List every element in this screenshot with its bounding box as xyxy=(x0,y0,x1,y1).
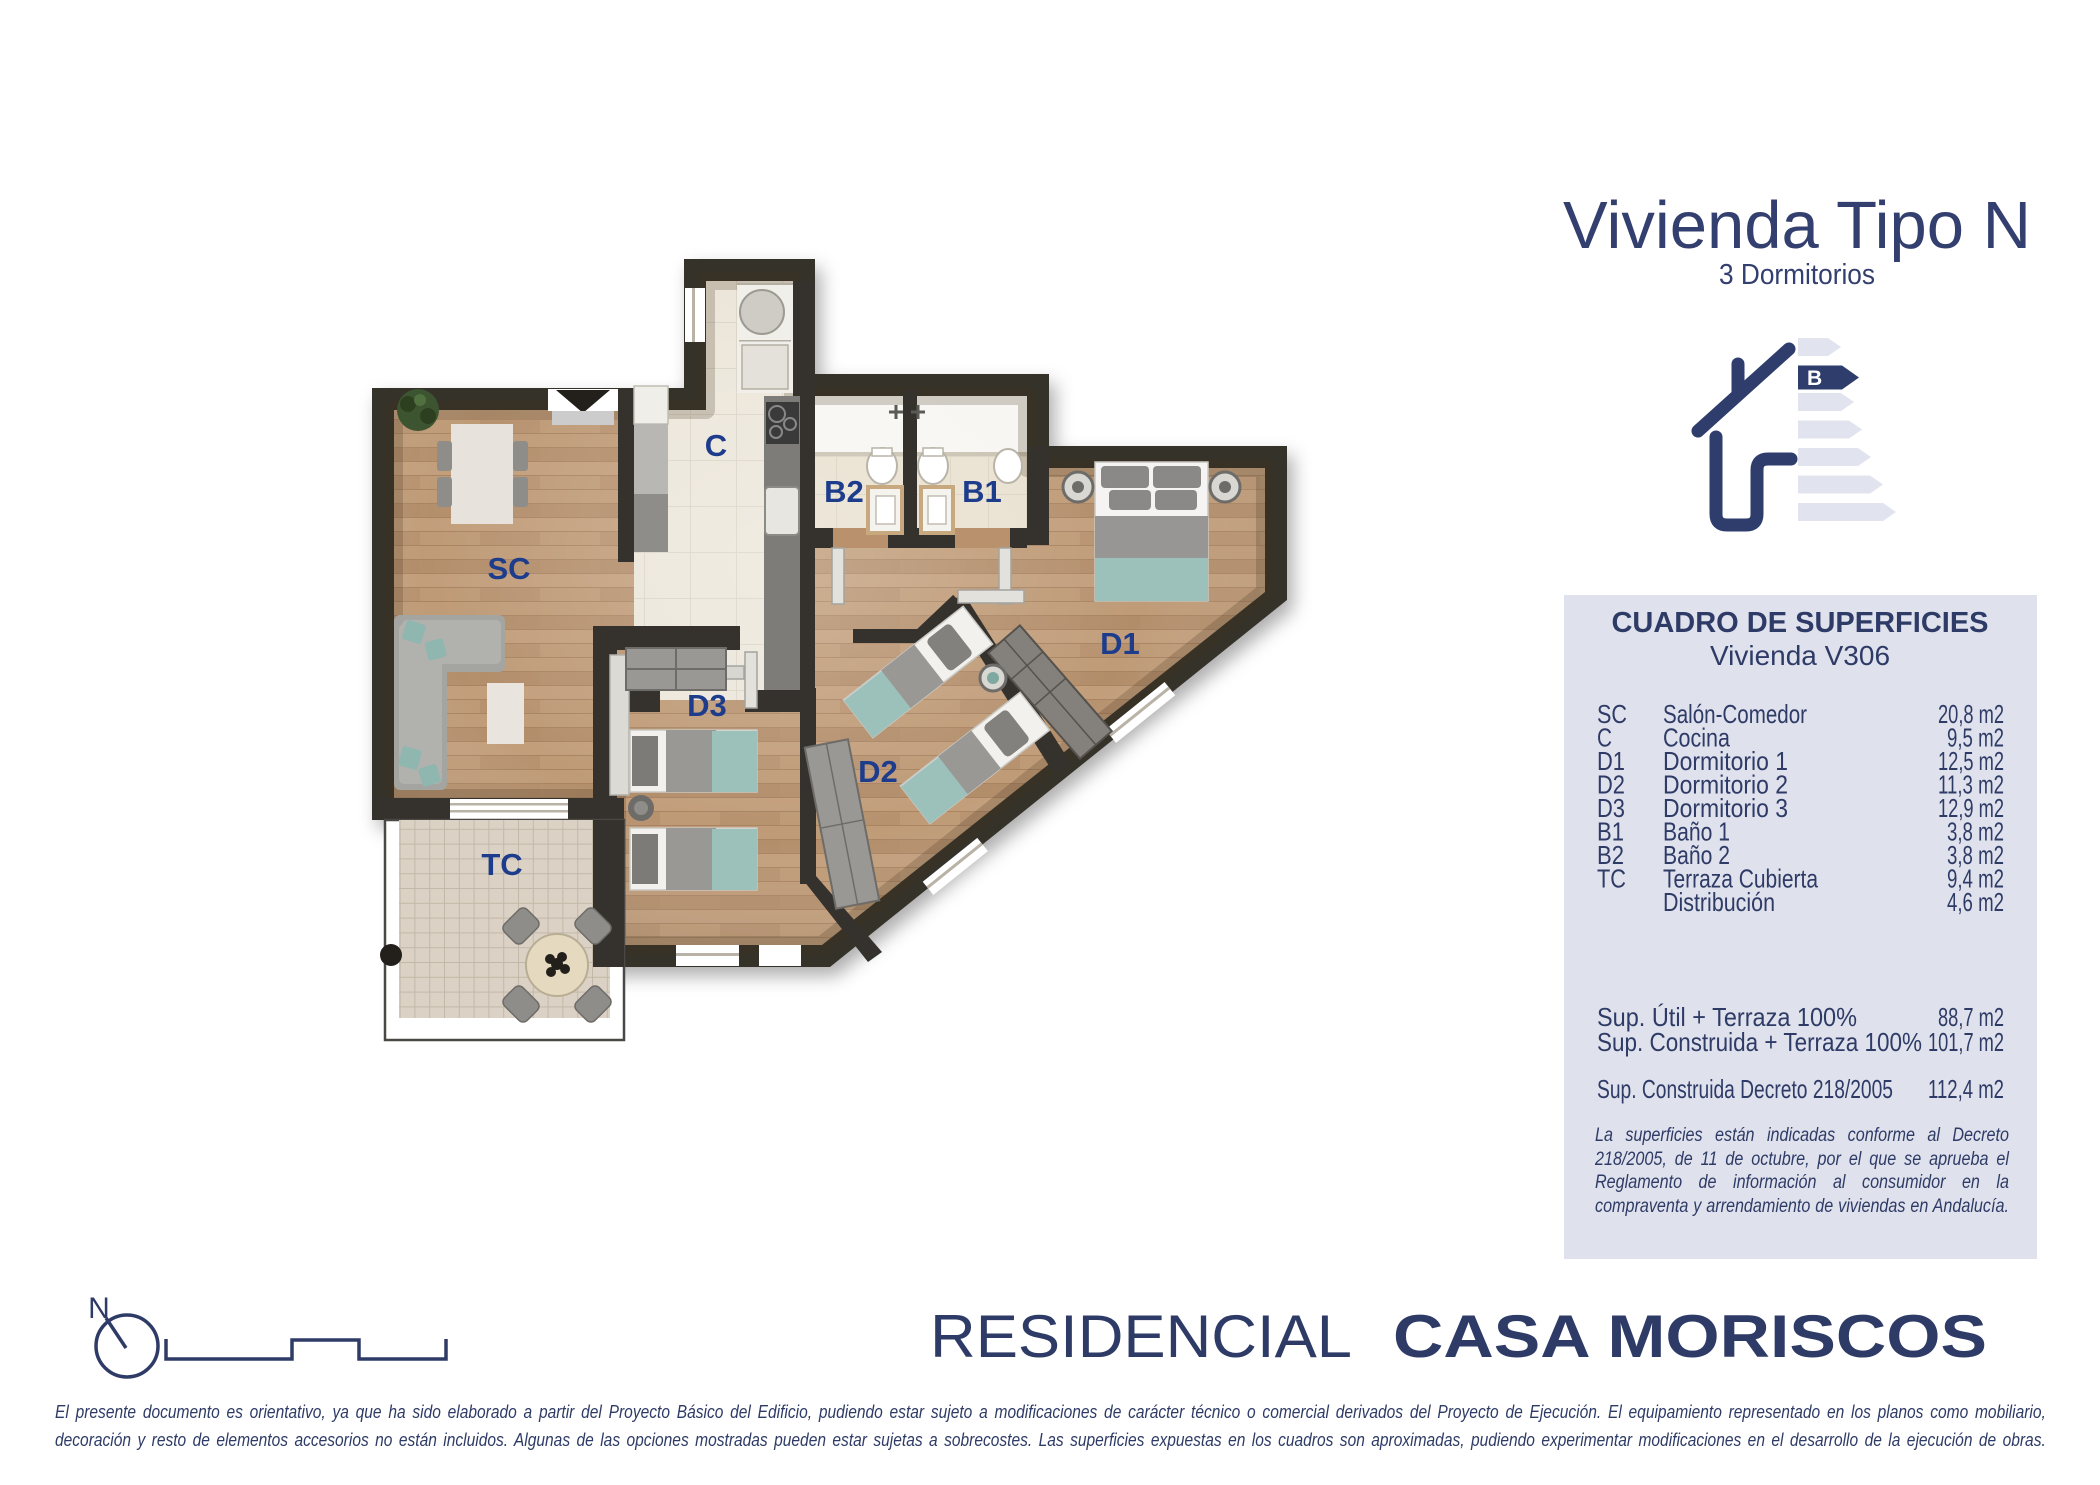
svg-text:SC: SC xyxy=(487,551,530,586)
svg-text:D2: D2 xyxy=(858,754,898,789)
svg-text:CASA MORISCOS: CASA MORISCOS xyxy=(1393,1303,1987,1370)
svg-text:D1: D1 xyxy=(1100,626,1140,661)
svg-text:B1: B1 xyxy=(962,474,1002,509)
svg-text:Vivienda Tipo N: Vivienda Tipo N xyxy=(1563,188,2031,263)
svg-text:Distribución: Distribución xyxy=(1663,887,1775,917)
svg-text:D3: D3 xyxy=(687,688,727,723)
svg-text:C: C xyxy=(705,428,727,463)
svg-text:Vivienda V306: Vivienda V306 xyxy=(1710,640,1890,671)
svg-text:RESIDENCIAL: RESIDENCIAL xyxy=(930,1303,1352,1370)
svg-text:4,6 m2: 4,6 m2 xyxy=(1947,887,2004,917)
svg-text:3 Dormitorios: 3 Dormitorios xyxy=(1719,259,1875,291)
svg-text:Sup. Construida Decreto 218/20: Sup. Construida Decreto 218/2005 xyxy=(1597,1074,1893,1104)
svg-text:TC: TC xyxy=(1597,864,1626,894)
svg-text:101,7 m2: 101,7 m2 xyxy=(1928,1027,2004,1057)
svg-text:CUADRO DE SUPERFICIES: CUADRO DE SUPERFICIES xyxy=(1611,607,1988,639)
svg-text:B2: B2 xyxy=(824,474,864,509)
svg-text:112,4 m2: 112,4 m2 xyxy=(1928,1074,2004,1104)
svg-text:N: N xyxy=(88,1292,110,1325)
svg-text:Sup. Construida + Terraza 100%: Sup. Construida + Terraza 100% xyxy=(1597,1027,1922,1057)
svg-text:TC: TC xyxy=(481,847,522,882)
svg-text:B: B xyxy=(1807,367,1822,390)
